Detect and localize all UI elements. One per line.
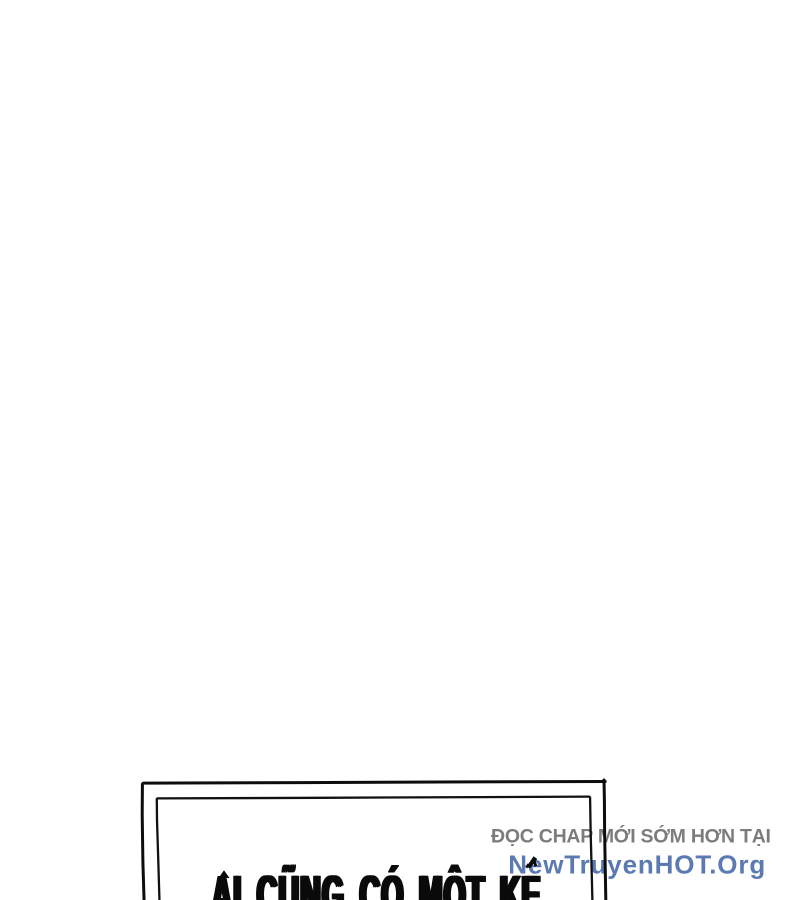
- svg-text:NewTruyenHOT.Org: NewTruyenHOT.Org: [508, 849, 766, 879]
- svg-text:AI CŨNG CÓ MỘT KE: AI CŨNG CÓ MỘT KE: [214, 862, 544, 900]
- svg-text:ĐỌC CHAP MỚI SỚM HƠN TẠI: ĐỌC CHAP MỚI SỚM HƠN TẠI: [491, 823, 771, 847]
